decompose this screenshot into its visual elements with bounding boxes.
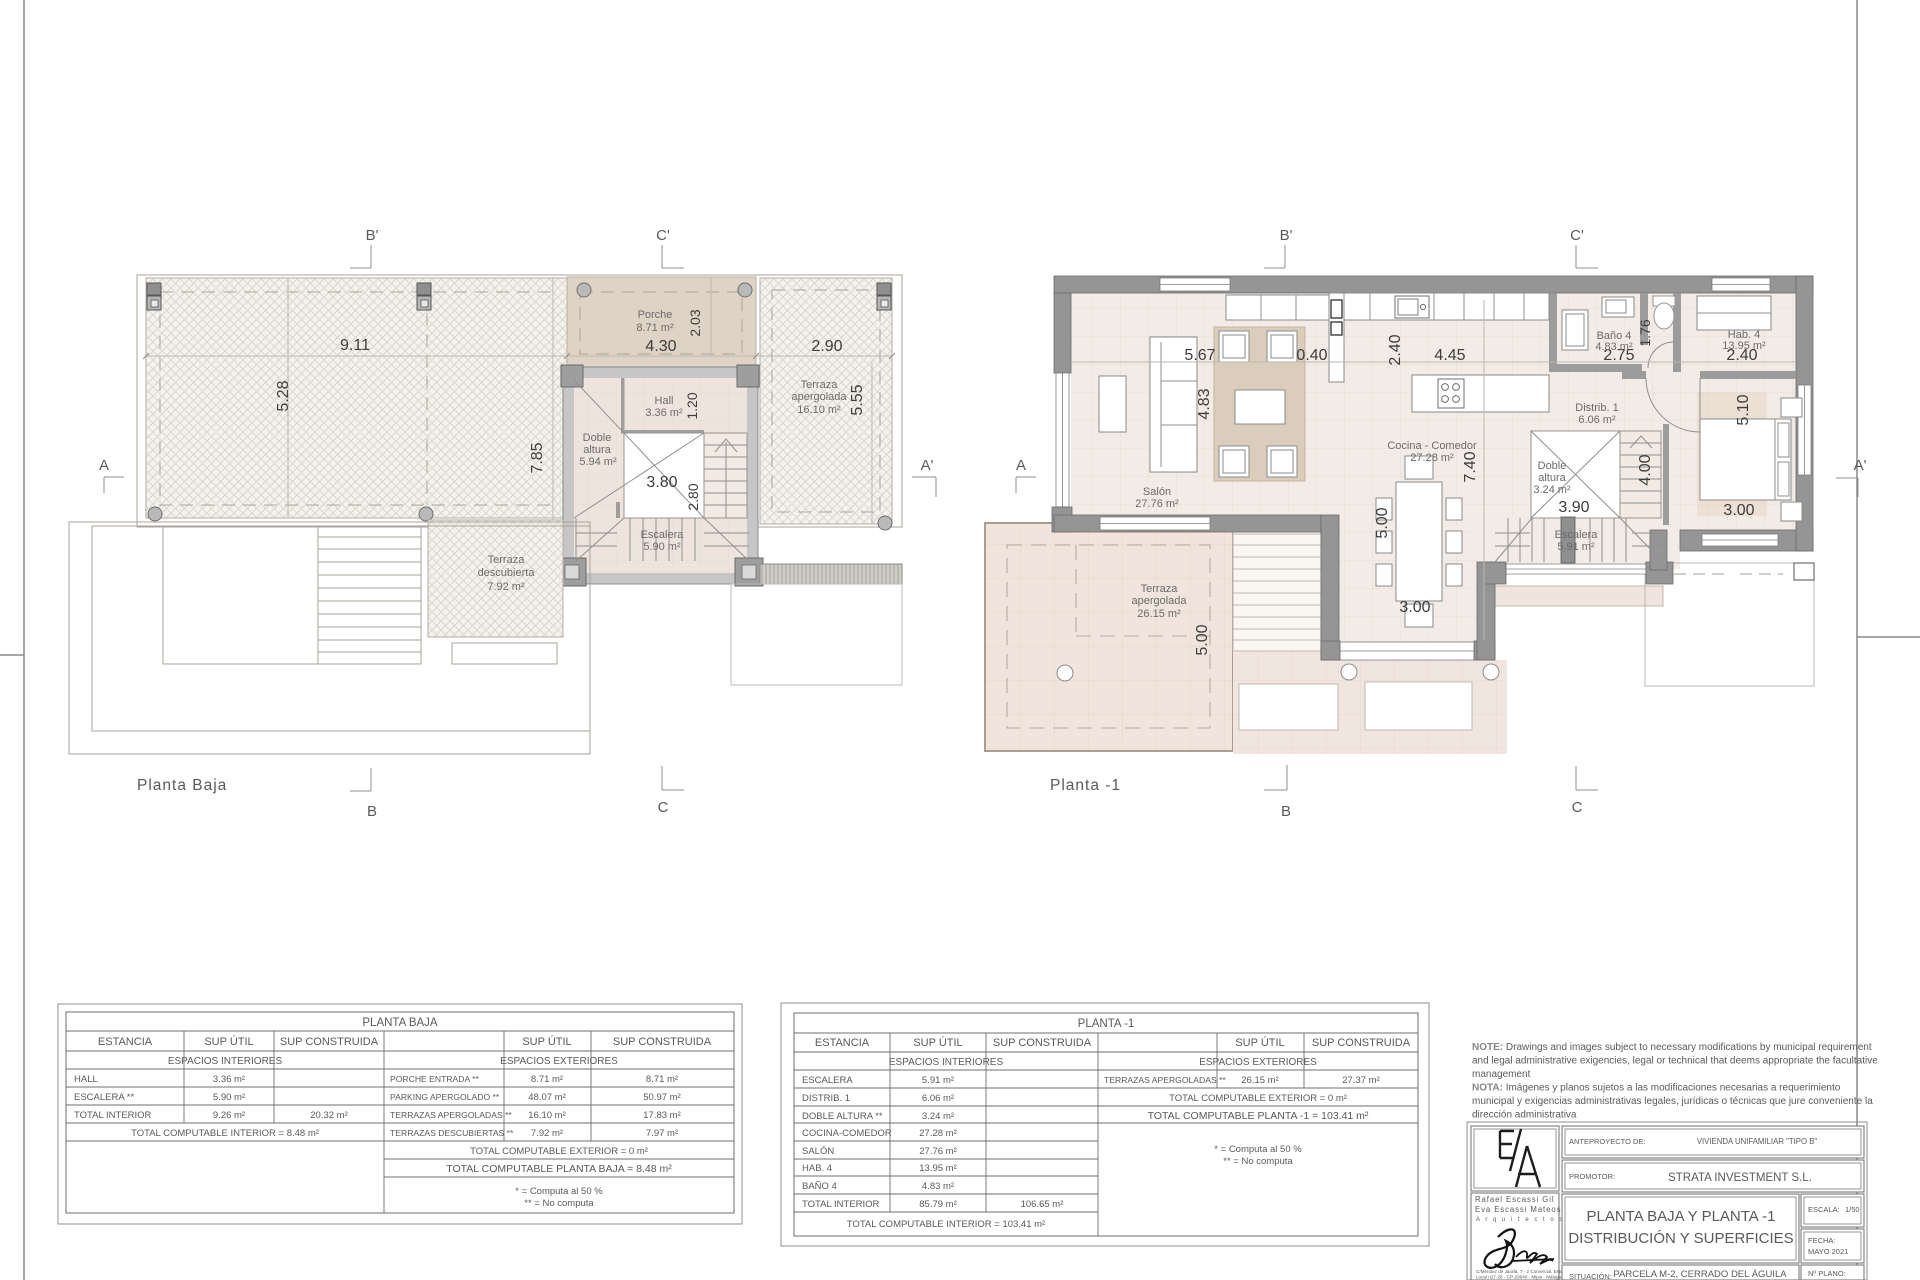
svg-text:5.91 m²: 5.91 m² [1557, 541, 1595, 553]
svg-text:* = Computa al 50 %: * = Computa al 50 % [515, 1186, 603, 1197]
svg-text:dirección administrativa: dirección administrativa [1472, 1110, 1577, 1121]
svg-text:management: management [1472, 1069, 1531, 1080]
svg-text:48.07 m²: 48.07 m² [528, 1092, 566, 1103]
svg-text:16.10 m²: 16.10 m² [528, 1110, 566, 1121]
svg-text:MAYO 2021: MAYO 2021 [1808, 1247, 1848, 1256]
svg-text:SUP ÚTIL: SUP ÚTIL [522, 1035, 571, 1048]
svg-text:26.15 m²: 26.15 m² [1137, 608, 1181, 620]
svg-text:COCINA-COMEDOR: COCINA-COMEDOR [802, 1128, 892, 1139]
svg-text:B': B' [366, 227, 379, 244]
svg-text:5.94 m²: 5.94 m² [579, 456, 617, 468]
svg-text:Porche: Porche [638, 309, 673, 321]
svg-text:5.10: 5.10 [1735, 394, 1752, 425]
svg-text:Cocina - Comedor: Cocina - Comedor [1387, 440, 1477, 452]
svg-text:26.15 m²: 26.15 m² [1241, 1075, 1279, 1086]
svg-text:B: B [367, 803, 377, 820]
svg-text:DISTRIBUCIÓN Y SUPERFICIES: DISTRIBUCIÓN Y SUPERFICIES [1568, 1230, 1793, 1247]
svg-text:B: B [1281, 803, 1291, 820]
svg-text:and legal administrative exige: and legal administrative exigencies, leg… [1472, 1056, 1878, 1067]
svg-text:SALÓN: SALÓN [802, 1146, 834, 1157]
svg-text:1.76: 1.76 [1637, 319, 1653, 346]
svg-text:4.45: 4.45 [1434, 347, 1465, 364]
svg-text:* = Computa al 50 %: * = Computa al 50 % [1214, 1144, 1302, 1155]
svg-text:Rafael Escassi Gil: Rafael Escassi Gil [1475, 1195, 1554, 1204]
svg-text:TERRAZAS APERGOLADAS **: TERRAZAS APERGOLADAS ** [1104, 1075, 1226, 1085]
svg-text:TOTAL COMPUTABLE EXTERIOR = 0: TOTAL COMPUTABLE EXTERIOR = 0 m² [470, 1146, 648, 1157]
svg-text:6.06 m²: 6.06 m² [922, 1093, 954, 1104]
svg-text:C': C' [656, 227, 670, 244]
svg-text:6.06 m²: 6.06 m² [1578, 414, 1616, 426]
svg-text:4.83 m²: 4.83 m² [922, 1181, 954, 1192]
svg-text:5.90 m²: 5.90 m² [213, 1092, 245, 1103]
svg-text:2.03: 2.03 [687, 309, 703, 336]
svg-text:VIVIENDA UNIFAMILIAR "TIPO B": VIVIENDA UNIFAMILIAR "TIPO B" [1697, 1137, 1818, 1146]
svg-text:C/Méndez de Jarafa, 7 - 2 Come: C/Méndez de Jarafa, 7 - 2 Comercial, Est… [1476, 1269, 1573, 1274]
svg-text:9.11: 9.11 [340, 337, 370, 354]
svg-text:B': B' [1280, 227, 1293, 244]
svg-text:PARCELA M-2, CERRADO DEL ÁGUIL: PARCELA M-2, CERRADO DEL ÁGUILA [1613, 1269, 1787, 1280]
svg-text:PLANTA BAJA Y PLANTA -1: PLANTA BAJA Y PLANTA -1 [1587, 1208, 1776, 1225]
svg-text:A: A [1016, 457, 1026, 474]
svg-text:27.28 m²: 27.28 m² [919, 1128, 957, 1139]
svg-text:SUP ÚTIL: SUP ÚTIL [204, 1035, 253, 1048]
svg-text:HAB. 4: HAB. 4 [802, 1163, 832, 1174]
svg-text:TOTAL COMPUTABLE INTERIOR = 10: TOTAL COMPUTABLE INTERIOR = 103.41 m² [847, 1219, 1045, 1230]
svg-text:ANTEPROYECTO DE:: ANTEPROYECTO DE: [1569, 1137, 1646, 1146]
svg-text:20.32 m²: 20.32 m² [310, 1110, 348, 1121]
svg-text:TOTAL COMPUTABLE INTERIOR = 8.: TOTAL COMPUTABLE INTERIOR = 8.48 m² [131, 1128, 319, 1139]
svg-text:** = No computa: ** = No computa [1223, 1156, 1293, 1167]
svg-text:17.83 m²: 17.83 m² [643, 1110, 681, 1121]
svg-text:27.37 m²: 27.37 m² [1342, 1075, 1380, 1086]
svg-text:PORCHE ENTRADA **: PORCHE ENTRADA ** [390, 1074, 479, 1084]
svg-text:8.71 m²: 8.71 m² [646, 1074, 678, 1085]
svg-text:4.83: 4.83 [1196, 388, 1213, 419]
svg-text:A r q u i t e c t o s: A r q u i t e c t o s [1476, 1217, 1564, 1223]
svg-text:SUP CONSTRUIDA: SUP CONSTRUIDA [280, 1036, 379, 1048]
svg-text:Hall: Hall [655, 395, 674, 407]
svg-text:3.24 m²: 3.24 m² [1533, 484, 1571, 496]
svg-text:SUP CONSTRUIDA: SUP CONSTRUIDA [613, 1036, 712, 1048]
svg-text:TERRAZAS APERGOLADAS **: TERRAZAS APERGOLADAS ** [390, 1110, 512, 1120]
svg-text:ESCALERA **: ESCALERA ** [74, 1092, 134, 1103]
svg-text:DISTRIB. 1: DISTRIB. 1 [802, 1093, 850, 1104]
svg-text:C: C [658, 799, 669, 816]
svg-text:1.20: 1.20 [684, 392, 700, 419]
svg-text:TOTAL INTERIOR: TOTAL INTERIOR [802, 1199, 880, 1210]
svg-text:Doble: Doble [583, 432, 612, 444]
svg-text:4.83 m²: 4.83 m² [1595, 341, 1633, 353]
svg-text:ESCALA:: ESCALA: [1808, 1205, 1840, 1214]
svg-text:0.40: 0.40 [1296, 347, 1327, 364]
svg-text:13.95 m²: 13.95 m² [1722, 340, 1766, 352]
svg-text:2.80: 2.80 [685, 483, 701, 510]
svg-text:A: A [99, 457, 109, 474]
svg-text:ESPACIOS INTERIORES: ESPACIOS INTERIORES [889, 1057, 1004, 1068]
svg-text:Terraza: Terraza [801, 379, 839, 391]
svg-text:ESPACIOS EXTERIORES: ESPACIOS EXTERIORES [1199, 1057, 1317, 1068]
svg-text:altura: altura [583, 444, 611, 456]
svg-text:85.79 m²: 85.79 m² [919, 1199, 957, 1210]
svg-text:5.28: 5.28 [275, 380, 292, 411]
svg-text:5.55: 5.55 [849, 384, 866, 415]
svg-text:PLANTA -1: PLANTA -1 [1078, 1018, 1135, 1030]
svg-text:NOTE: Drawings and images subj: NOTE: Drawings and images subject to nec… [1472, 1042, 1872, 1053]
svg-text:Doble: Doble [1538, 460, 1567, 472]
svg-text:TOTAL COMPUTABLE PLANTA BAJA =: TOTAL COMPUTABLE PLANTA BAJA = 8.48 m² [446, 1163, 672, 1175]
svg-text:2.90: 2.90 [811, 338, 842, 355]
svg-text:3.36 m²: 3.36 m² [213, 1074, 245, 1085]
svg-text:3.80: 3.80 [646, 474, 677, 491]
svg-text:4.00: 4.00 [1637, 454, 1654, 485]
svg-text:8.71 m²: 8.71 m² [531, 1074, 563, 1085]
svg-text:descubierta: descubierta [478, 567, 536, 579]
svg-text:Salón: Salón [1143, 486, 1171, 498]
svg-text:apergolada: apergolada [1131, 595, 1187, 607]
svg-text:SITUACIÓN:: SITUACIÓN: [1569, 1272, 1612, 1280]
svg-text:apergolada: apergolada [791, 391, 847, 403]
svg-text:4.30: 4.30 [645, 338, 676, 355]
svg-text:16.10 m²: 16.10 m² [797, 404, 841, 416]
svg-text:8.71 m²: 8.71 m² [636, 322, 674, 334]
svg-text:municipal y exigencias adminis: municipal y exigencias administrativas l… [1472, 1096, 1873, 1107]
svg-text:Terraza: Terraza [488, 554, 526, 566]
svg-text:Escalera: Escalera [641, 529, 685, 541]
svg-text:5.91 m²: 5.91 m² [922, 1075, 954, 1086]
svg-text:Planta -1: Planta -1 [1050, 777, 1121, 794]
svg-text:ESPACIOS EXTERIORES: ESPACIOS EXTERIORES [500, 1056, 618, 1067]
svg-text:27.28 m²: 27.28 m² [1410, 452, 1454, 464]
svg-text:BAÑO 4: BAÑO 4 [802, 1181, 837, 1192]
svg-text:Nº PLANO:: Nº PLANO: [1808, 1269, 1846, 1278]
svg-text:3.24 m²: 3.24 m² [922, 1111, 954, 1122]
svg-text:NOTA: Imágenes y planos sujeto: NOTA: Imágenes y planos sujetos a las mo… [1472, 1083, 1841, 1094]
svg-text:7.85: 7.85 [529, 442, 546, 473]
svg-text:A': A' [921, 457, 934, 474]
svg-text:7.97 m²: 7.97 m² [646, 1128, 678, 1139]
svg-text:STRATA INVESTMENT S.L.: STRATA INVESTMENT S.L. [1668, 1172, 1812, 1184]
svg-text:1/50: 1/50 [1845, 1205, 1860, 1214]
svg-text:27.76 m²: 27.76 m² [919, 1146, 957, 1157]
svg-text:A': A' [1854, 457, 1867, 474]
svg-text:3.90: 3.90 [1558, 499, 1589, 516]
svg-text:9.26 m²: 9.26 m² [213, 1110, 245, 1121]
svg-text:DOBLE ALTURA **: DOBLE ALTURA ** [802, 1111, 883, 1122]
svg-text:FECHA:: FECHA: [1808, 1236, 1836, 1245]
svg-text:TOTAL COMPUTABLE EXTERIOR = 0: TOTAL COMPUTABLE EXTERIOR = 0 m² [1169, 1093, 1347, 1104]
svg-text:TERRAZAS DESCUBIERTAS **: TERRAZAS DESCUBIERTAS ** [390, 1128, 514, 1138]
svg-text:C: C [1572, 799, 1583, 816]
svg-text:Planta Baja: Planta Baja [137, 777, 227, 794]
svg-text:50.97 m²: 50.97 m² [643, 1092, 681, 1103]
svg-text:ESCALERA: ESCALERA [802, 1075, 853, 1086]
svg-text:ESTANCIA: ESTANCIA [98, 1036, 153, 1048]
svg-text:3.00: 3.00 [1399, 599, 1430, 616]
svg-text:SUP CONSTRUIDA: SUP CONSTRUIDA [1312, 1037, 1411, 1049]
svg-text:2.40: 2.40 [1387, 334, 1404, 365]
svg-text:SUP CONSTRUIDA: SUP CONSTRUIDA [993, 1037, 1092, 1049]
svg-text:Terraza: Terraza [1141, 583, 1179, 595]
svg-text:ESTANCIA: ESTANCIA [815, 1037, 870, 1049]
svg-text:PROMOTOR:: PROMOTOR: [1569, 1172, 1615, 1181]
svg-text:5.90 m²: 5.90 m² [643, 541, 681, 553]
svg-text:altura: altura [1538, 472, 1566, 484]
svg-text:PARKING APERGOLADO **: PARKING APERGOLADO ** [390, 1092, 500, 1102]
svg-text:3.36 m²: 3.36 m² [645, 407, 683, 419]
svg-text:TOTAL INTERIOR: TOTAL INTERIOR [74, 1110, 152, 1121]
svg-text:5.00: 5.00 [1374, 507, 1391, 538]
svg-text:7.92 m²: 7.92 m² [487, 581, 525, 593]
svg-text:7.40: 7.40 [1462, 451, 1479, 482]
svg-text:7.92 m²: 7.92 m² [531, 1128, 563, 1139]
svg-text:106.65 m²: 106.65 m² [1021, 1199, 1064, 1210]
svg-text:** = No computa: ** = No computa [524, 1198, 594, 1209]
svg-text:5.00: 5.00 [1194, 624, 1211, 655]
svg-text:Local n27-28 - CP-29640 - Mija: Local n27-28 - CP-29640 - Mijas - Málaga [1476, 1275, 1562, 1280]
svg-text:SUP ÚTIL: SUP ÚTIL [1235, 1036, 1284, 1049]
svg-text:5.67: 5.67 [1184, 347, 1215, 364]
svg-text:HALL: HALL [74, 1074, 98, 1085]
svg-text:27.76 m²: 27.76 m² [1135, 498, 1179, 510]
svg-text:TOTAL COMPUTABLE PLANTA -1 = 1: TOTAL COMPUTABLE PLANTA -1 = 103.41 m² [1148, 1110, 1369, 1122]
svg-text:SUP ÚTIL: SUP ÚTIL [913, 1036, 962, 1049]
svg-text:Escalera: Escalera [1555, 529, 1599, 541]
svg-text:ESPACIOS INTERIORES: ESPACIOS INTERIORES [168, 1056, 283, 1067]
svg-text:C': C' [1570, 227, 1584, 244]
svg-text:Distrib. 1: Distrib. 1 [1575, 402, 1618, 414]
svg-text:Eva Escassi Mateos: Eva Escassi Mateos [1475, 1205, 1561, 1214]
svg-text:13.95 m²: 13.95 m² [919, 1163, 957, 1174]
svg-text:3.00: 3.00 [1723, 502, 1754, 519]
svg-text:PLANTA BAJA: PLANTA BAJA [362, 1017, 438, 1029]
